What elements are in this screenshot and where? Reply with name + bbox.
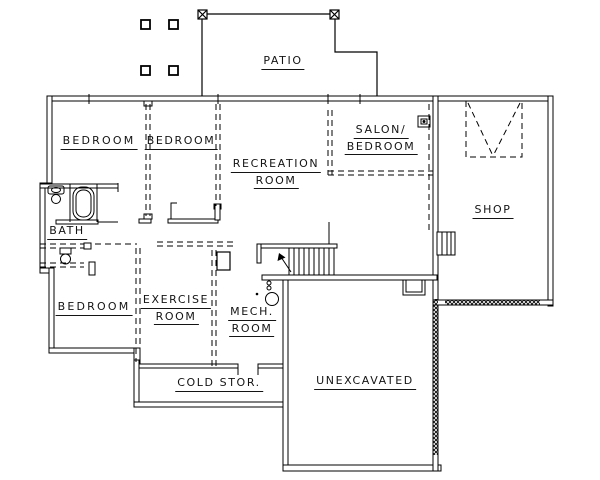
furnace-icon	[217, 252, 230, 270]
room-label-bedroom-top-left: BEDROOM	[61, 133, 138, 150]
exterior-walls	[40, 96, 553, 471]
room-label-bedroom-bottom-left: BEDROOM	[56, 299, 133, 316]
ceiling-fixture-icon	[418, 116, 430, 127]
room-label-salon-bedroom: SALON/ BEDROOM	[345, 122, 418, 155]
room-label-bedroom-top-middle: BEDROOM	[145, 133, 218, 150]
room-label-recreation-room: RECREATION ROOM	[231, 156, 321, 189]
room-label-shop: SHOP	[473, 202, 514, 219]
water-heater-icon	[256, 281, 278, 306]
room-label-mech-room: MECH. ROOM	[228, 304, 276, 337]
foundation-hatch	[434, 299, 541, 455]
bathtub-icon	[70, 184, 97, 222]
room-label-bath: BATH	[47, 223, 87, 240]
window-well-icon	[466, 101, 522, 157]
chimney-icon	[437, 232, 455, 255]
floor-plan: PATIO BEDROOM BEDROOM RECREATION ROOM SA…	[0, 0, 600, 480]
room-label-unexcavated: UNEXCAVATED	[314, 373, 416, 390]
stairs-icon	[257, 244, 337, 275]
patio-column-icon	[141, 20, 178, 75]
room-label-exercise-room: EXERCISE ROOM	[141, 292, 211, 325]
room-label-cold-storage: COLD STOR.	[175, 375, 263, 392]
toilet-icon-2	[60, 248, 71, 264]
room-label-patio: PATIO	[261, 53, 304, 70]
floor-plan-linework	[0, 0, 600, 480]
toilet-icon	[52, 195, 61, 204]
